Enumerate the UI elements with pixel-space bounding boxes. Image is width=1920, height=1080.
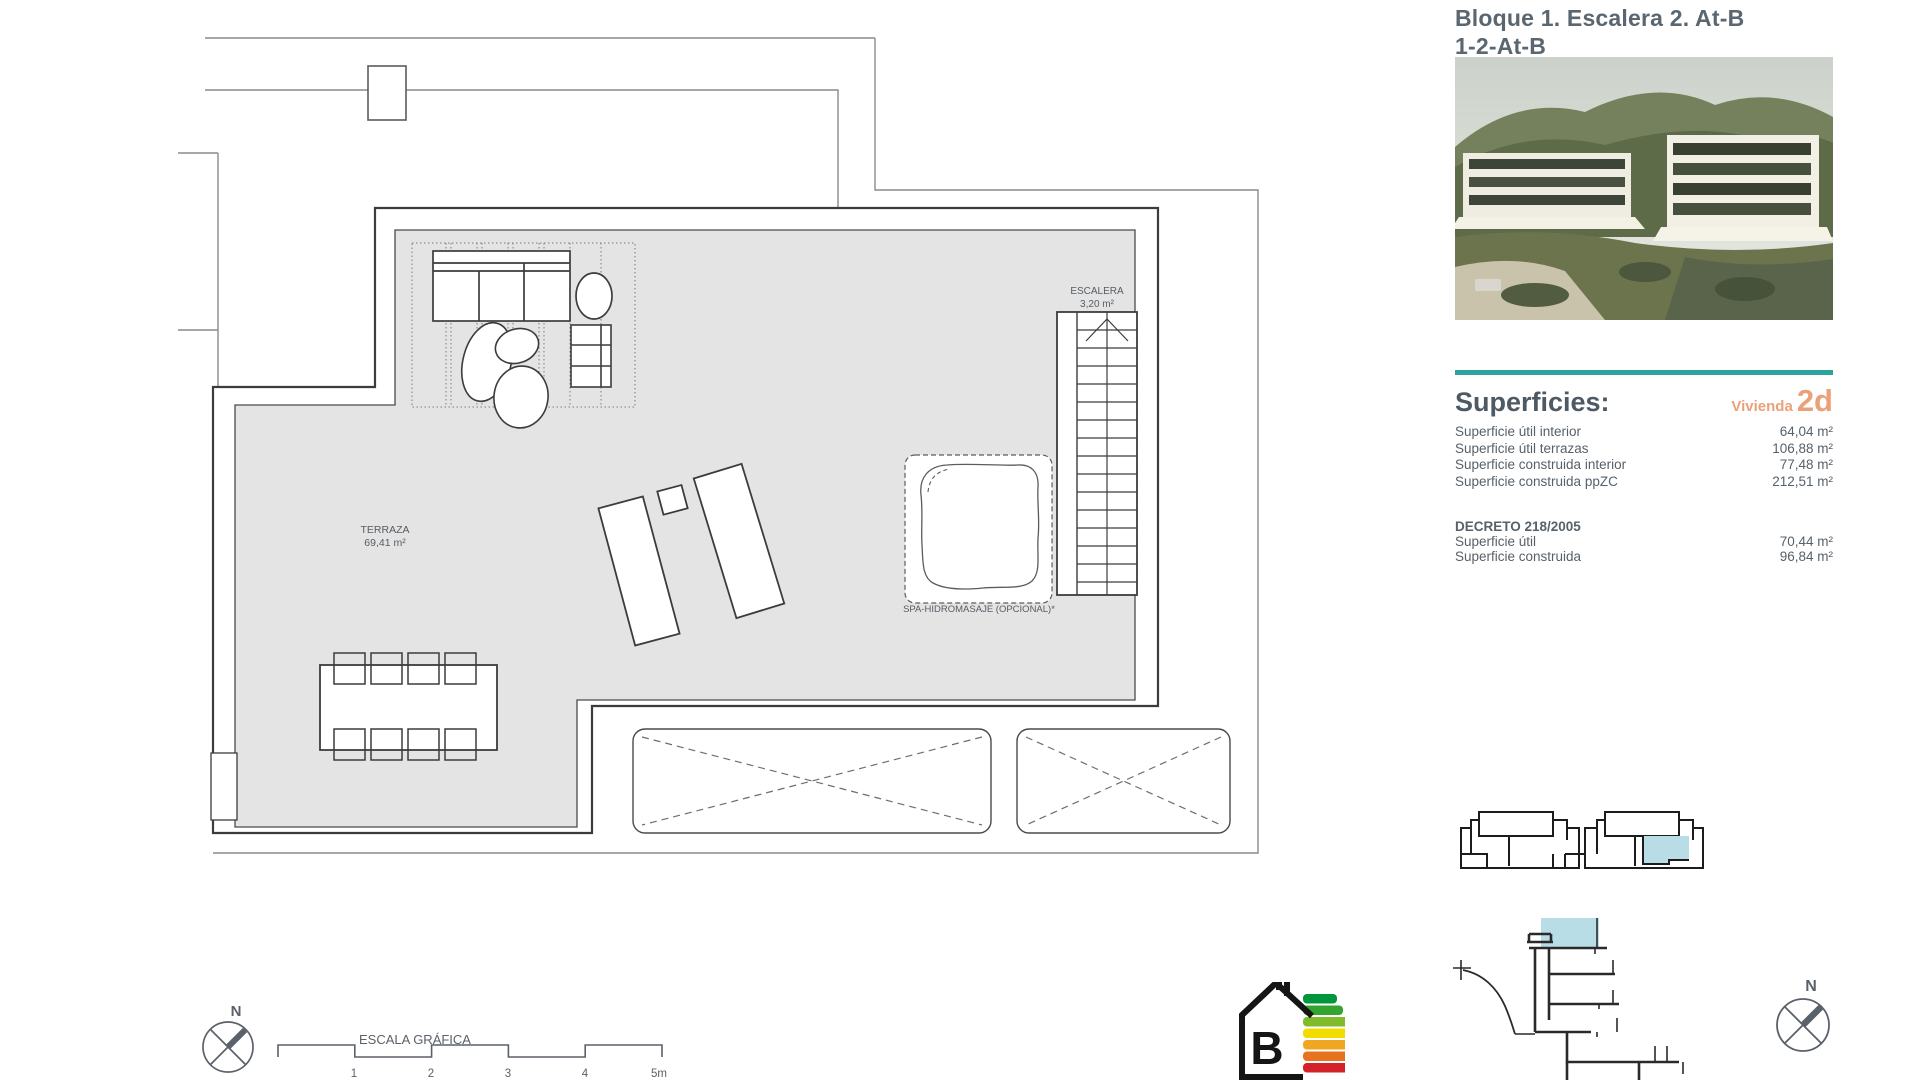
table-row: Superficie útil interior 64,04 m² xyxy=(1455,424,1833,441)
row-value: 106,88 m² xyxy=(1772,441,1833,458)
decreto-heading: DECRETO 218/2005 xyxy=(1455,519,1833,535)
chimney-shaft xyxy=(368,66,406,120)
escalera-area-label: 3,20 m² xyxy=(1080,299,1115,310)
row-value: 96,84 m² xyxy=(1780,550,1833,565)
superficies-heading: Superficies: xyxy=(1455,387,1610,418)
table-row: Superficie construida ppZC 212,51 m² xyxy=(1455,474,1833,491)
round-side-table xyxy=(576,273,612,319)
table-row: Superficie construida interior 77,48 m² xyxy=(1455,457,1833,474)
row-label: Superficie útil xyxy=(1455,535,1536,550)
compass-right: N xyxy=(1773,975,1837,1064)
sofa xyxy=(433,251,570,321)
building-left xyxy=(1455,153,1645,229)
vivienda-tag: Vivienda2d xyxy=(1731,383,1833,419)
table-row: Superficie útil terrazas 106,88 m² xyxy=(1455,441,1833,458)
terraza-label: TERRAZA xyxy=(360,524,409,536)
table-row: Superficie útil 70,44 m² xyxy=(1455,535,1833,550)
title-line-2: 1-2-At-B xyxy=(1455,32,1833,60)
svg-text:2: 2 xyxy=(428,1068,434,1080)
row-value: 64,04 m² xyxy=(1780,424,1833,441)
energy-bars xyxy=(1303,994,1345,1073)
compass-n-label: N xyxy=(231,1003,242,1020)
skylight-right xyxy=(1017,729,1230,833)
row-value: 77,48 m² xyxy=(1780,457,1833,474)
row-label: Superficie construida interior xyxy=(1455,457,1626,474)
section-diagram xyxy=(1449,912,1689,1080)
vivienda-label: Vivienda xyxy=(1731,398,1792,415)
row-label: Superficie útil interior xyxy=(1455,424,1581,441)
page-title: Bloque 1. Escalera 2. At-B 1-2-At-B xyxy=(1455,4,1833,60)
vivienda-code: 2d xyxy=(1797,383,1833,418)
scale-bar-ticks: 1 2 3 4 5m xyxy=(351,1068,667,1080)
svg-text:5m: 5m xyxy=(651,1068,667,1080)
skylight-left xyxy=(633,729,991,833)
decreto-block: DECRETO 218/2005 Superficie útil 70,44 m… xyxy=(1455,519,1833,564)
info-panel: Bloque 1. Escalera 2. At-B 1-2-At-B xyxy=(1455,0,1833,60)
spa-hidromasaje xyxy=(905,455,1052,603)
dining-set xyxy=(320,653,497,760)
energy-letter: B xyxy=(1250,1022,1283,1074)
row-value: 70,44 m² xyxy=(1780,535,1833,550)
teal-divider xyxy=(1455,370,1833,375)
shelf-table xyxy=(571,325,611,387)
property-render-photo xyxy=(1455,57,1833,320)
energy-rating-icon: B xyxy=(1215,982,1345,1080)
building-right xyxy=(1653,135,1833,241)
row-label: Superficie construida xyxy=(1455,550,1581,565)
row-label: Superficie construida ppZC xyxy=(1455,474,1618,491)
row-label: Superficie útil terrazas xyxy=(1455,441,1589,458)
floor-plan-sheet: ESCALERA 3,20 m² xyxy=(0,0,1920,1080)
superficies-table: Superficie útil interior 64,04 m² Superf… xyxy=(1455,424,1833,490)
key-plan-diagram xyxy=(1457,810,1707,883)
row-value: 212,51 m² xyxy=(1772,474,1833,491)
svg-text:1: 1 xyxy=(351,1068,357,1080)
svg-text:4: 4 xyxy=(582,1068,589,1080)
compass-left: N xyxy=(203,1003,253,1072)
table-row: Superficie construida 96,84 m² xyxy=(1455,550,1833,565)
wall-opening xyxy=(211,753,237,820)
staircase xyxy=(1057,312,1137,595)
title-line-1: Bloque 1. Escalera 2. At-B xyxy=(1455,4,1833,32)
svg-text:3: 3 xyxy=(505,1068,511,1080)
terraza-area-label: 69,41 m² xyxy=(364,537,406,549)
escalera-label: ESCALERA xyxy=(1070,286,1124,297)
spa-label: SPA-HIDROMASAJE (OPCIONAL)* xyxy=(903,604,1055,615)
compass-n-label: N xyxy=(1805,978,1817,995)
